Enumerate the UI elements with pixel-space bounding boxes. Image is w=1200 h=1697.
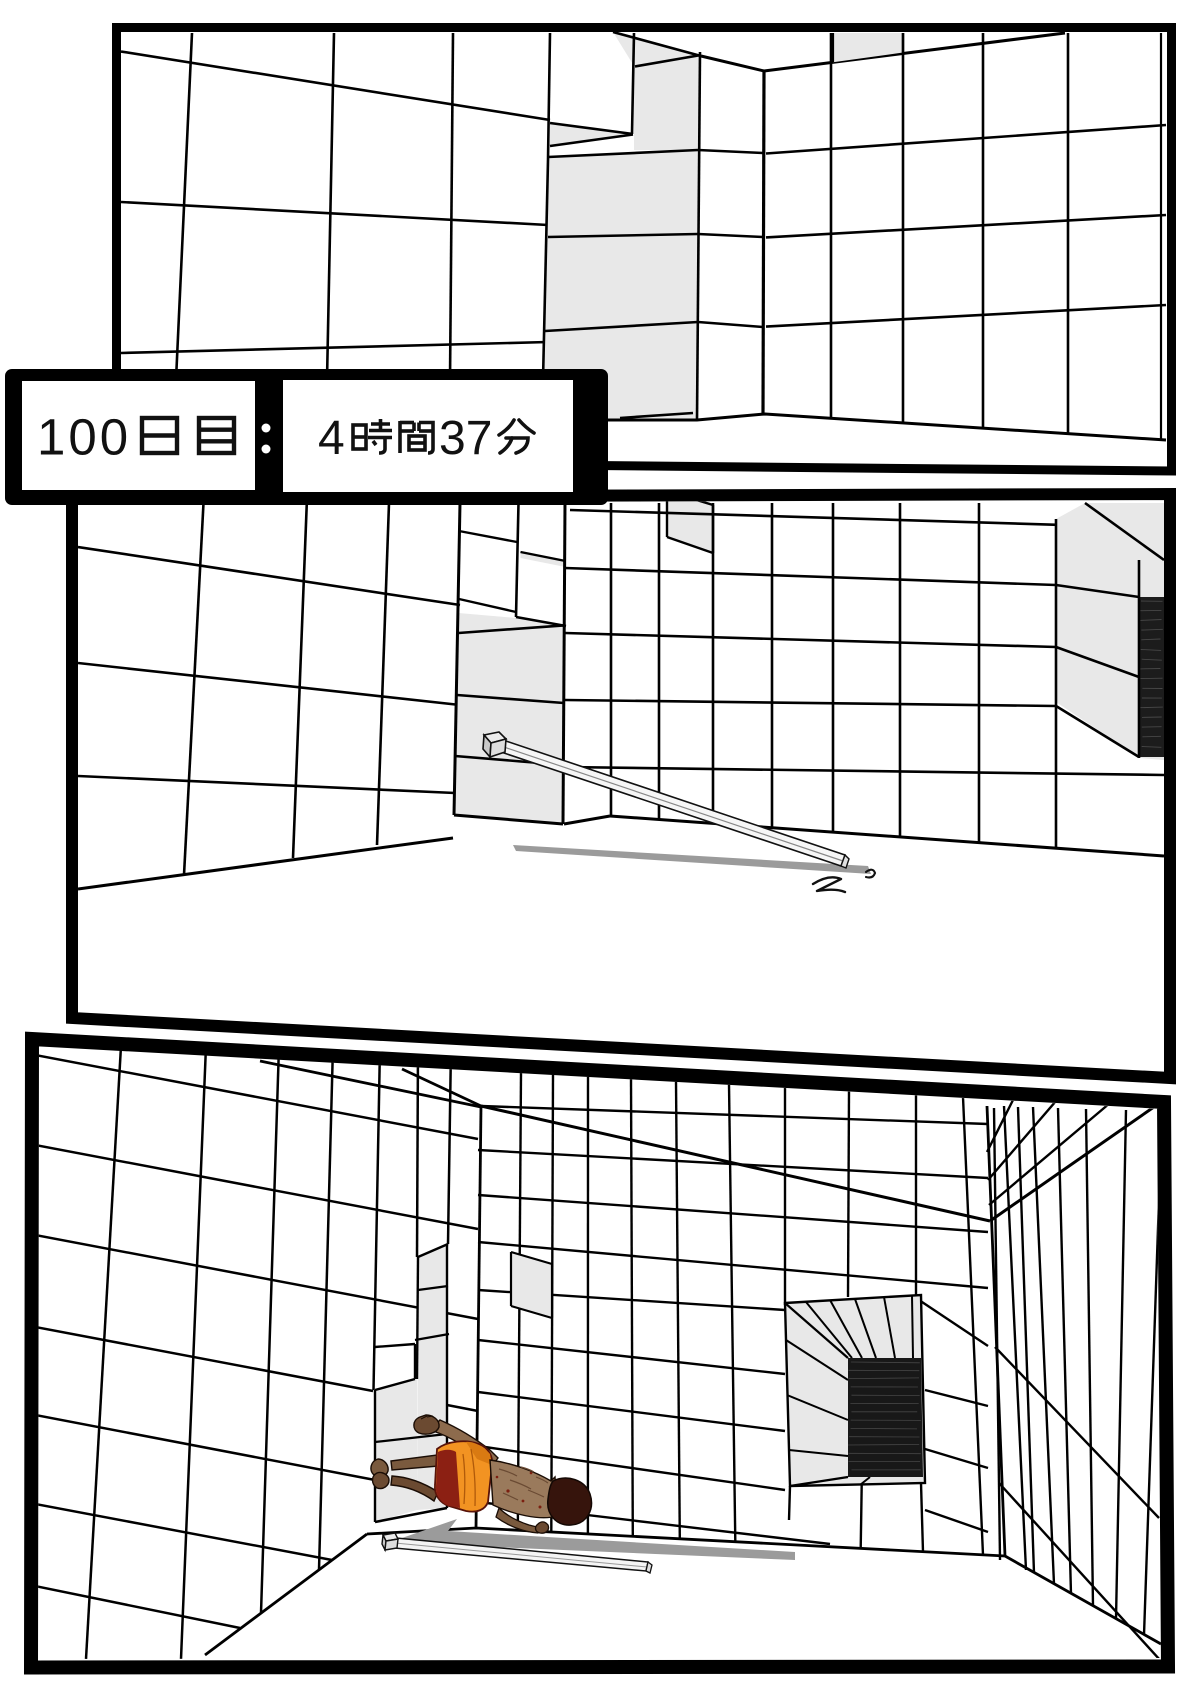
svg-text:100: 100 — [37, 409, 131, 466]
svg-text:4: 4 — [318, 412, 345, 465]
svg-text:37: 37 — [439, 412, 492, 465]
